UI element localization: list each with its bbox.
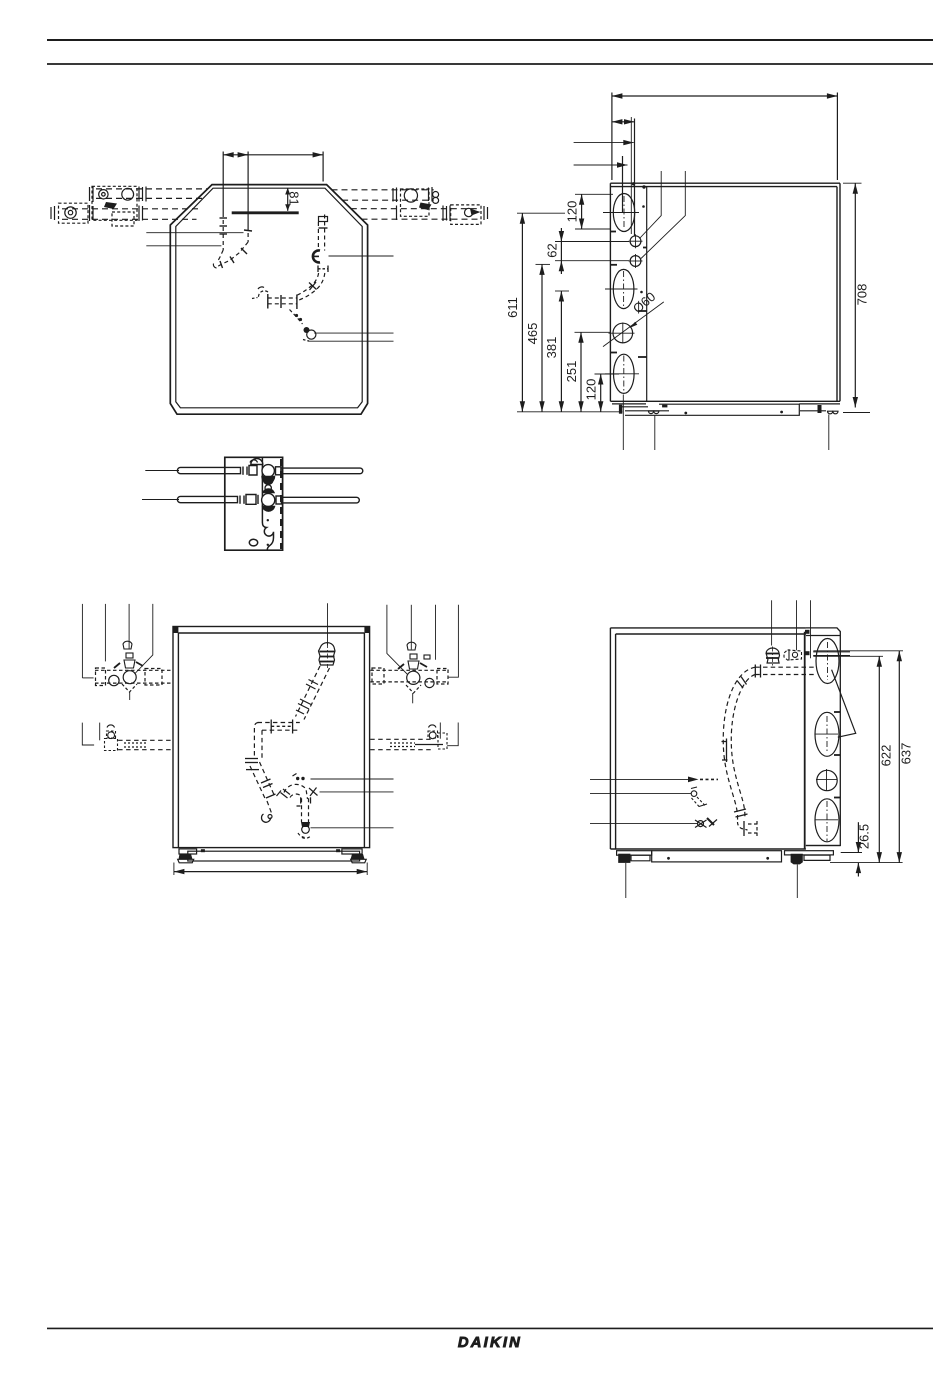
svg-text:81: 81	[287, 191, 302, 205]
svg-text:120: 120	[565, 201, 580, 223]
svg-text:611: 611	[505, 297, 520, 318]
svg-text:26.5: 26.5	[857, 824, 872, 849]
svg-text:622: 622	[879, 745, 894, 767]
svg-text:DAIKIN: DAIKIN	[458, 1335, 522, 1351]
svg-text:708: 708	[855, 284, 870, 306]
svg-text:62: 62	[545, 243, 560, 257]
svg-text:381: 381	[544, 337, 559, 359]
svg-text:251: 251	[564, 361, 579, 383]
svg-text:120: 120	[584, 379, 599, 401]
svg-text:637: 637	[899, 743, 914, 765]
svg-text:465: 465	[525, 323, 540, 345]
